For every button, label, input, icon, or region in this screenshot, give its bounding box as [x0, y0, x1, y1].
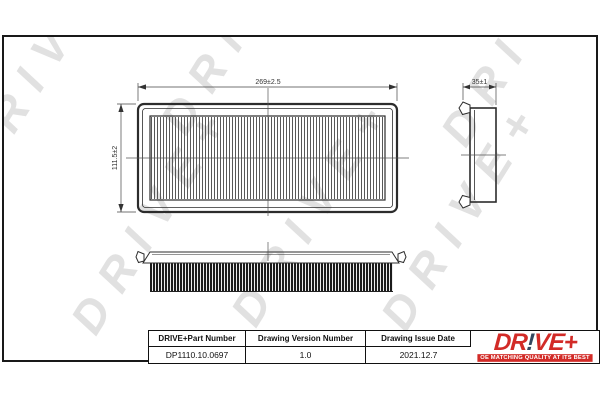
- front-view: [136, 242, 406, 263]
- part-number-value: DP1110.10.0697: [149, 347, 246, 363]
- dimension-side-depth: 35±1: [463, 79, 496, 105]
- version-header: Drawing Version Number: [246, 331, 366, 347]
- issue-date-value: 2021.12.7: [366, 347, 471, 363]
- brand-logo: DR!VE+ OE MATCHING QUALITY AT ITS BEST: [471, 331, 599, 363]
- side-depth-dimension-label: 35±1: [472, 79, 488, 86]
- top-width-dimension-label: 269±2.5: [255, 79, 280, 86]
- top-view: 269±2.5 111.5±2: [112, 79, 409, 216]
- mounting-clip-right: [398, 252, 406, 263]
- mounting-clip-top: [459, 102, 470, 115]
- mounting-clip-bottom: [459, 196, 470, 209]
- version-value: 1.0: [246, 347, 366, 363]
- drawing-sheet: DRIVE+ DRIVE+ DRIVE+ DRIVE+ DRIVE+ DRIVE…: [0, 0, 600, 400]
- filter-frame-edge: [143, 252, 399, 263]
- mounting-clip-left: [136, 252, 144, 263]
- logo-suffix: VE+: [532, 329, 577, 356]
- logo-prefix: DR: [493, 329, 528, 356]
- title-block: DRIVE+Part Number Drawing Version Number…: [148, 330, 600, 364]
- part-number-header: DRIVE+Part Number: [149, 331, 246, 347]
- top-height-dimension-label: 111.5±2: [112, 146, 119, 170]
- dimension-top-width: 269±2.5: [138, 79, 397, 101]
- driveplus-logo: DR!VE+: [493, 332, 577, 354]
- issue-date-header: Drawing Issue Date: [366, 331, 471, 347]
- logo-tagline: OE MATCHING QUALITY AT ITS BEST: [477, 354, 592, 362]
- side-view: 35±1: [459, 79, 506, 208]
